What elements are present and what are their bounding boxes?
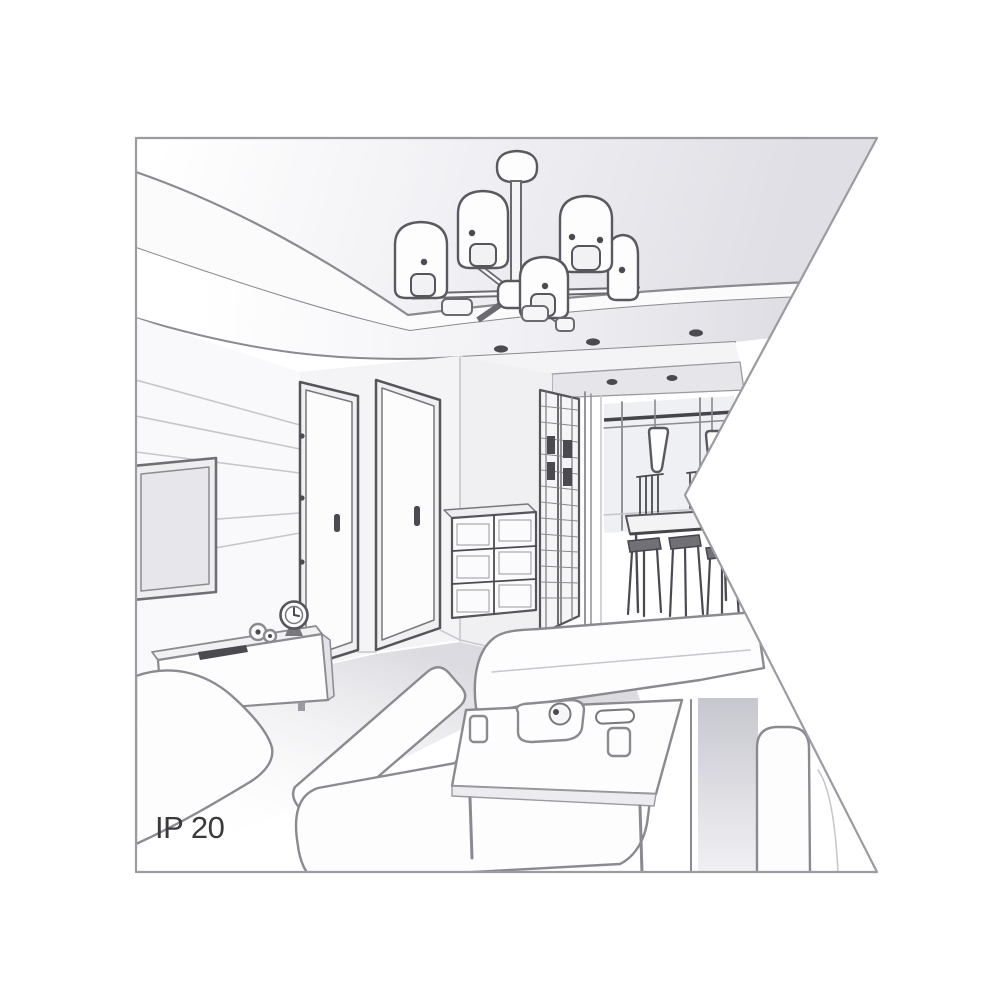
tv: [133, 458, 216, 600]
bowl: [517, 700, 584, 742]
downlight-dot: [689, 329, 703, 336]
door-handle: [414, 506, 420, 526]
downlight-dot: [586, 338, 600, 345]
tray: [596, 709, 635, 724]
drawer-chest: [444, 504, 536, 618]
product-image: IP 20: [0, 0, 1000, 1000]
ip-rating-label: IP 20: [155, 810, 225, 845]
chandelier-stem: [511, 181, 521, 285]
door-right: [376, 380, 440, 650]
sideboard-leg: [298, 702, 305, 711]
cup: [470, 716, 487, 742]
grid-wardrobe: [540, 390, 579, 634]
door-handle: [334, 514, 340, 532]
door-left: [299, 382, 358, 668]
chandelier-canopy: [497, 151, 537, 182]
soffit-downlight-dot: [667, 375, 678, 381]
bowl-item: [550, 704, 571, 725]
room-illustration: IP 20: [0, 0, 1000, 1000]
soffit-downlight-dot: [607, 379, 618, 385]
downlight-dot: [494, 345, 508, 352]
cup: [608, 728, 630, 756]
sofa-armrest: [757, 727, 810, 873]
